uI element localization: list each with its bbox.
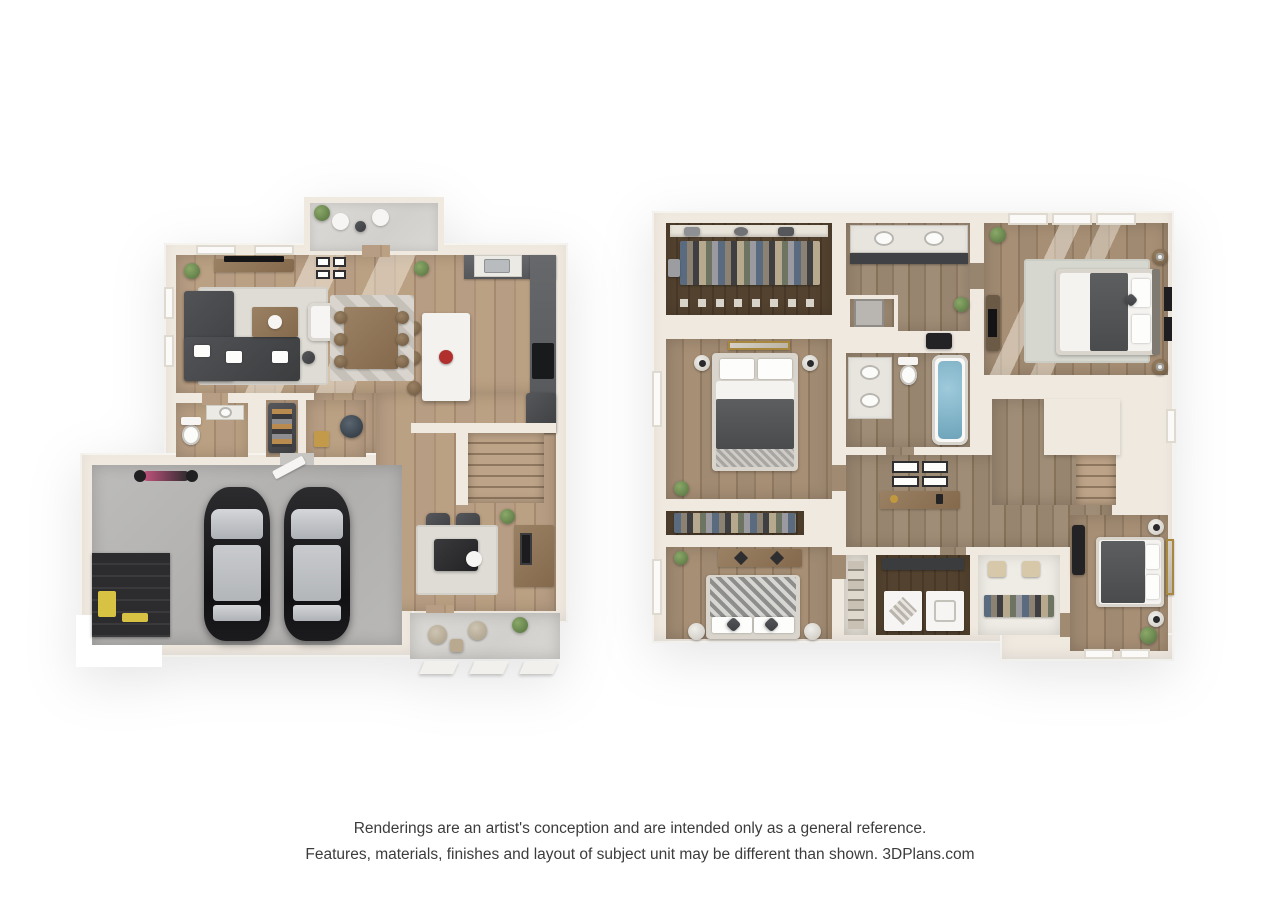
nightstand — [688, 623, 705, 640]
bedroom3-dresser — [718, 549, 802, 567]
foot-blanket — [716, 449, 794, 467]
bedroom-plant — [990, 227, 1006, 243]
lamp — [1156, 363, 1164, 371]
second-floor-plan — [640, 203, 1192, 678]
toilet — [900, 365, 917, 385]
hall-gallery-frames — [892, 461, 948, 487]
closet4-hanging-clothes — [984, 595, 1054, 617]
lamp — [699, 360, 706, 367]
art-above-bed — [728, 341, 790, 350]
duvet — [1101, 541, 1145, 603]
laundry-shelf — [882, 558, 964, 570]
dryer-door — [934, 600, 956, 622]
closet-bag — [778, 227, 794, 236]
window — [254, 245, 294, 255]
storage-basket — [988, 561, 1006, 577]
car-rear-window — [293, 605, 341, 621]
tool-bin-yellow — [122, 613, 148, 622]
storage-basket — [1022, 561, 1040, 577]
window — [1096, 213, 1136, 225]
dining-chair — [334, 311, 347, 324]
living-room-plant — [184, 263, 200, 279]
stair-wall — [411, 423, 556, 433]
console-decor — [936, 494, 943, 504]
bedroom4-door — [1060, 613, 1070, 637]
washer-lid — [889, 597, 917, 625]
vanity-sink — [860, 393, 880, 408]
page: Renderings are an artist's conception an… — [0, 0, 1280, 900]
sofa-pillow — [194, 345, 210, 357]
window — [1166, 409, 1176, 443]
washer — [884, 591, 922, 631]
office-plant — [500, 509, 515, 524]
sofa-pillow — [272, 351, 288, 363]
master-bedroom-door — [970, 263, 984, 289]
frame — [316, 257, 330, 267]
storage-box — [314, 431, 329, 447]
water-heater — [340, 415, 363, 438]
patio-table — [450, 639, 463, 652]
closet-bag — [684, 227, 700, 236]
bathtub-water — [938, 361, 962, 439]
front-door-opening — [362, 245, 390, 257]
motorcycle-wheel — [134, 470, 146, 482]
frame — [333, 270, 347, 280]
wall-art — [1164, 317, 1172, 341]
wall-art — [1164, 287, 1172, 311]
sofa-pillow — [226, 351, 242, 363]
car-windshield — [291, 509, 343, 539]
porch-step — [519, 661, 559, 674]
patio-chair — [468, 621, 487, 640]
dresser-tv — [988, 309, 997, 337]
porch-chair — [372, 209, 389, 226]
tool-bin-yellow — [98, 591, 116, 617]
porch-plant — [512, 617, 528, 633]
window — [1084, 649, 1114, 659]
desk-chair — [466, 551, 482, 567]
console-decor — [890, 495, 898, 503]
car-windshield — [211, 509, 263, 539]
frame — [892, 476, 919, 488]
powder-door-opening — [202, 393, 228, 405]
car — [284, 487, 350, 641]
side-table — [302, 351, 315, 364]
disclaimer: Renderings are an artist's conception an… — [0, 816, 1280, 868]
hanging-clothes — [680, 241, 820, 285]
dining-chair — [334, 333, 347, 346]
disclaimer-line1: Renderings are an artist's conception an… — [0, 816, 1280, 842]
staircase-up — [468, 433, 544, 503]
pillow — [1146, 545, 1159, 569]
window — [652, 371, 662, 427]
dining-table — [344, 307, 398, 369]
motorcycle-wheel — [186, 470, 198, 482]
bedroom3-door — [832, 555, 846, 579]
toilet-tank — [898, 357, 918, 365]
master-duvet-runner — [1090, 273, 1128, 351]
stairwell-halfwall — [1044, 399, 1120, 455]
kitchen-sink — [484, 259, 510, 273]
bedroom3-plant — [674, 551, 688, 565]
dining-chair — [396, 333, 409, 346]
coffee-table-tray — [268, 315, 282, 329]
frame — [922, 461, 949, 473]
toilet-tank — [181, 417, 201, 425]
island-stool — [407, 381, 421, 395]
powder-sink — [219, 407, 232, 418]
duvet — [716, 399, 794, 449]
master-vanity-counter — [850, 225, 968, 253]
car-roof — [293, 545, 341, 601]
leaning-art — [520, 533, 532, 565]
vanity-sink — [874, 231, 894, 246]
shower-door — [854, 299, 884, 327]
bedroom4-plant — [1140, 627, 1157, 644]
patio-chair — [428, 625, 447, 644]
houndstooth-blanket — [710, 577, 796, 617]
frame — [333, 257, 347, 267]
porch-step — [469, 661, 509, 674]
nightstand — [804, 623, 821, 640]
window — [164, 335, 174, 367]
dining-chair — [334, 355, 347, 368]
tall-wall-art — [1166, 539, 1174, 595]
frame — [892, 461, 919, 473]
dryer — [926, 591, 964, 631]
gallery-wall-frames — [316, 257, 346, 279]
entry-porch-plant — [314, 205, 330, 221]
suitcase — [668, 259, 680, 277]
pillow — [1146, 575, 1159, 599]
linen-shelf-items — [848, 561, 864, 629]
motorcycle-body — [142, 471, 190, 481]
pillow — [1132, 315, 1150, 343]
window — [1052, 213, 1092, 225]
laundry-door — [940, 547, 966, 555]
dining-chair — [396, 311, 409, 324]
sheet — [716, 381, 794, 401]
vanity-sink — [860, 365, 880, 380]
window — [1120, 649, 1150, 659]
bath-plant — [954, 297, 969, 312]
headboard — [1152, 269, 1160, 355]
vanity-sink — [924, 231, 944, 246]
bedroom2-plant — [674, 481, 689, 496]
bedroom2-door — [832, 465, 846, 491]
first-floor-plan — [76, 195, 581, 685]
closet-bag — [734, 227, 748, 236]
porch-side-table — [355, 221, 366, 232]
motorcycle — [134, 467, 198, 485]
lamp — [1153, 616, 1160, 623]
pillow — [758, 359, 792, 379]
disclaimer-line2: Features, materials, finishes and layout… — [0, 842, 1280, 868]
porch-chair — [332, 213, 349, 230]
tv — [224, 256, 284, 262]
hall-wardrobe — [926, 333, 952, 349]
cooktop — [532, 343, 554, 379]
car-roof — [213, 545, 261, 601]
lamp — [1153, 524, 1160, 531]
frame — [316, 270, 330, 280]
pillow — [720, 359, 754, 379]
porch-step — [419, 661, 459, 674]
stair-wall — [456, 433, 468, 505]
lamp — [807, 360, 814, 367]
window — [652, 559, 662, 615]
vanity-cabinet — [850, 253, 968, 264]
closet-hanging-clothes — [674, 513, 796, 533]
lamp — [1156, 253, 1164, 261]
bedroom4-dresser — [1072, 525, 1085, 575]
car-rear-window — [213, 605, 261, 621]
island-centerpiece — [439, 350, 453, 364]
kitchen-plant — [414, 261, 429, 276]
staircase-down — [1076, 455, 1116, 505]
tool-rack — [92, 553, 170, 637]
hall-bath-door — [886, 447, 914, 455]
car — [204, 487, 270, 641]
window — [1008, 213, 1048, 225]
pantry-items — [272, 409, 292, 447]
window — [164, 287, 174, 319]
dining-chair — [396, 355, 409, 368]
toilet — [182, 425, 200, 445]
frame — [922, 476, 949, 488]
shoe-row — [680, 299, 820, 307]
window — [196, 245, 236, 255]
